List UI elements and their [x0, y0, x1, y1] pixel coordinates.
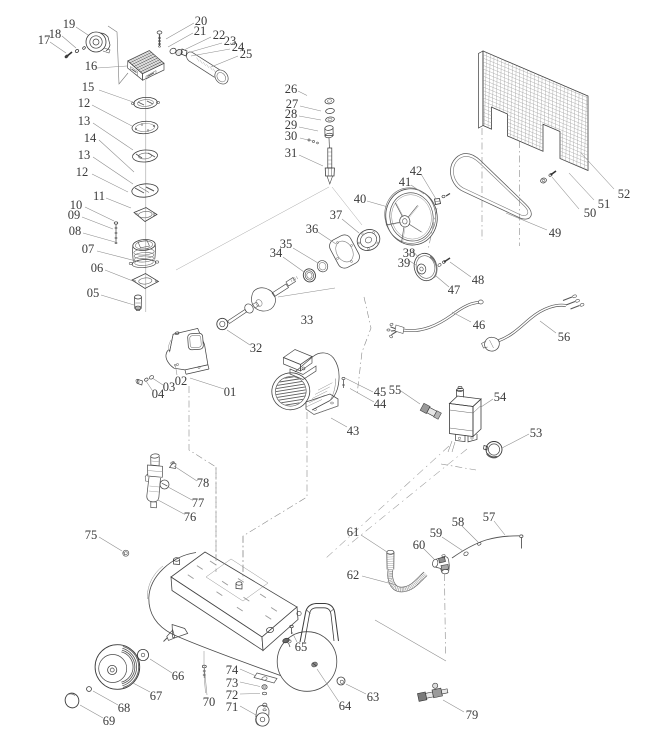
svg-text:61: 61: [347, 525, 360, 539]
svg-text:52: 52: [618, 187, 631, 201]
svg-text:26: 26: [285, 82, 298, 96]
svg-text:55: 55: [389, 383, 402, 397]
svg-text:69: 69: [103, 714, 116, 728]
svg-text:04: 04: [152, 387, 165, 401]
svg-text:19: 19: [63, 17, 76, 31]
svg-text:44: 44: [374, 397, 387, 411]
svg-text:11: 11: [93, 189, 105, 203]
svg-text:53: 53: [530, 426, 543, 440]
svg-text:05: 05: [87, 286, 100, 300]
svg-text:42: 42: [410, 164, 423, 178]
svg-text:71: 71: [226, 700, 239, 714]
svg-text:68: 68: [118, 701, 131, 715]
svg-text:49: 49: [549, 226, 562, 240]
svg-text:64: 64: [339, 699, 352, 713]
svg-text:32: 32: [250, 341, 263, 355]
svg-text:50: 50: [584, 206, 597, 220]
svg-text:35: 35: [280, 237, 293, 251]
svg-text:78: 78: [197, 476, 210, 490]
svg-text:40: 40: [354, 192, 367, 206]
svg-text:58: 58: [452, 515, 465, 529]
svg-text:75: 75: [85, 528, 98, 542]
svg-text:18: 18: [49, 27, 62, 41]
svg-text:46: 46: [473, 318, 486, 332]
svg-text:77: 77: [192, 496, 205, 510]
svg-text:21: 21: [194, 24, 207, 38]
svg-text:14: 14: [84, 131, 97, 145]
svg-text:10: 10: [70, 198, 83, 212]
svg-text:59: 59: [430, 526, 443, 540]
svg-text:72: 72: [226, 688, 239, 702]
svg-text:67: 67: [150, 689, 163, 703]
svg-text:54: 54: [494, 390, 507, 404]
svg-text:70: 70: [203, 695, 216, 709]
svg-text:45: 45: [374, 385, 387, 399]
svg-text:30: 30: [285, 129, 298, 143]
svg-text:01: 01: [224, 385, 237, 399]
svg-text:48: 48: [472, 273, 485, 287]
svg-text:16: 16: [85, 59, 98, 73]
svg-text:60: 60: [413, 538, 426, 552]
svg-text:03: 03: [163, 380, 176, 394]
svg-text:56: 56: [558, 330, 571, 344]
svg-text:62: 62: [347, 568, 360, 582]
svg-text:37: 37: [330, 208, 343, 222]
svg-text:13: 13: [78, 148, 91, 162]
svg-text:63: 63: [367, 690, 380, 704]
svg-text:79: 79: [466, 708, 479, 722]
svg-text:57: 57: [483, 510, 496, 524]
svg-text:08: 08: [69, 224, 82, 238]
svg-text:07: 07: [82, 242, 95, 256]
svg-text:51: 51: [598, 197, 611, 211]
svg-text:15: 15: [82, 80, 95, 94]
svg-text:12: 12: [78, 96, 91, 110]
svg-text:76: 76: [184, 510, 197, 524]
svg-text:25: 25: [240, 47, 253, 61]
svg-text:66: 66: [172, 669, 185, 683]
svg-text:31: 31: [285, 146, 298, 160]
svg-text:73: 73: [226, 676, 239, 690]
svg-text:33: 33: [301, 313, 314, 327]
svg-text:06: 06: [91, 261, 104, 275]
svg-text:47: 47: [448, 283, 461, 297]
svg-text:39: 39: [398, 256, 411, 270]
svg-text:43: 43: [347, 424, 360, 438]
svg-text:02: 02: [175, 374, 188, 388]
svg-text:65: 65: [295, 640, 308, 654]
svg-text:36: 36: [306, 222, 319, 236]
svg-text:74: 74: [226, 663, 239, 677]
svg-text:12: 12: [76, 165, 89, 179]
svg-text:13: 13: [78, 114, 91, 128]
